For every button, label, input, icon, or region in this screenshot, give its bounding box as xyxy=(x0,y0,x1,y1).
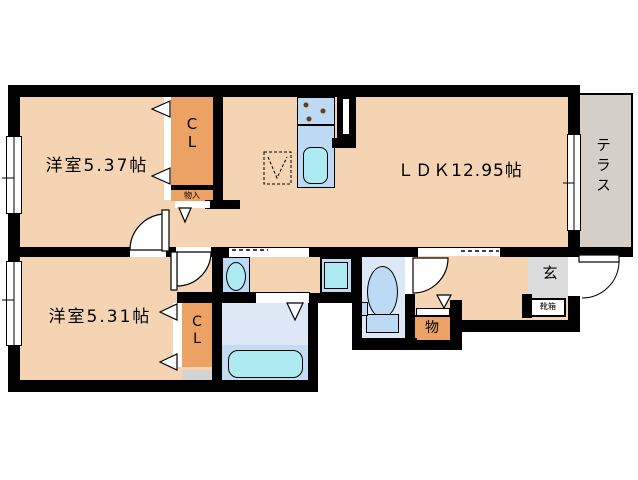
entrance-label: 玄 xyxy=(528,264,572,282)
fold-marker-closet-lower xyxy=(160,354,177,370)
terrace-label: テラス xyxy=(594,137,612,232)
door-arc-bedroom2 xyxy=(177,252,211,286)
door-leaf-bedroom1 xyxy=(162,210,169,251)
stove-burner xyxy=(321,109,326,114)
stove-burner xyxy=(304,103,309,108)
fold-marker-storage-upper xyxy=(179,208,191,222)
refrigerator-space xyxy=(264,152,291,184)
bedroom1-label: 洋室5.37帖 xyxy=(30,156,164,176)
storage-hall-label: 物 xyxy=(412,320,452,337)
floor-plan: 洋室5.37帖 ＬＤＫ12.95帖 洋室5.31帖 C L C L 物入 物 玄… xyxy=(0,0,638,480)
door-leaf-entrance xyxy=(579,255,619,262)
fold-marker-closet-upper xyxy=(152,101,170,117)
closet-lower-label: C L xyxy=(184,314,210,348)
refrigerator-mark xyxy=(268,157,287,178)
door-arc-bedroom1 xyxy=(130,214,166,250)
storage-upper-label: 物入 xyxy=(171,191,213,201)
door-leaf-bedroom2 xyxy=(171,252,177,290)
door-arc-toilet xyxy=(413,258,448,293)
door-arc-entrance xyxy=(582,262,619,298)
stove-burner xyxy=(307,117,312,122)
ldk-label: ＬＤＫ12.95帖 xyxy=(375,161,545,181)
shoe-cabinet-label: 靴箱 xyxy=(530,302,566,312)
bedroom2-label: 洋室5.31帖 xyxy=(33,307,167,327)
plan-symbols xyxy=(0,0,638,480)
closet-upper-label: C L xyxy=(179,115,205,151)
fold-marker-storage-hall xyxy=(437,295,451,308)
fold-marker-bathroom xyxy=(287,303,303,320)
